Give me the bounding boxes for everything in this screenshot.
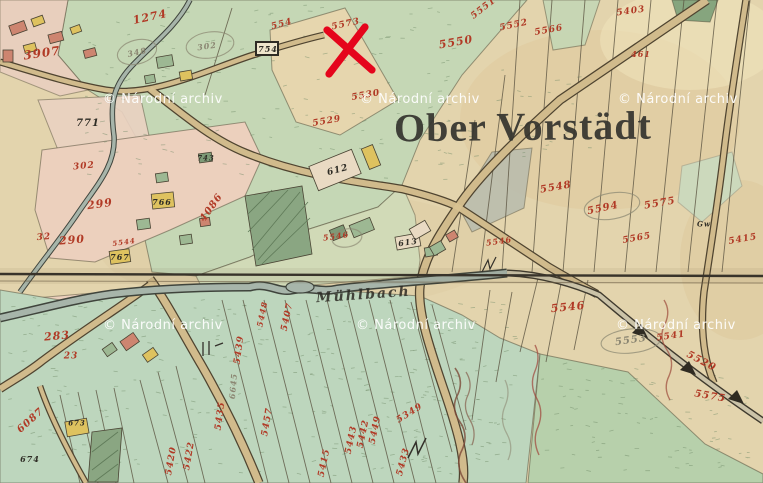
- house-754-box: [256, 42, 278, 55]
- map-viewport[interactable]: Ober Vorstädt Mühlbach 12745545573555055…: [0, 0, 763, 483]
- map-canvas: [0, 0, 763, 483]
- sheet-join-line: [0, 268, 763, 284]
